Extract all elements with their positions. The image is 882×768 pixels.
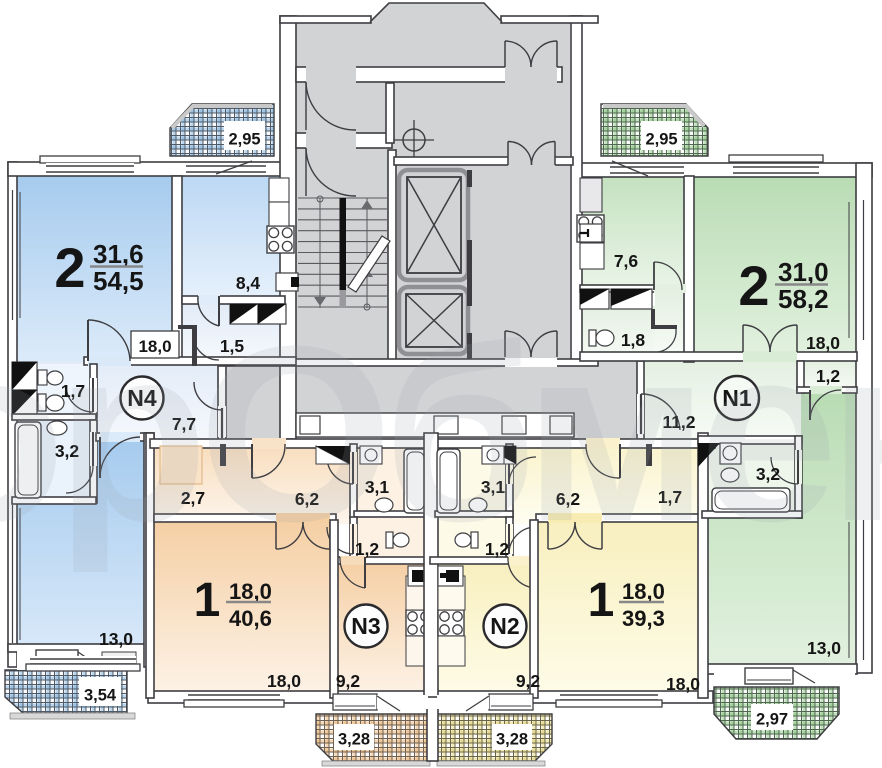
svg-text:орОбмен: орОбмен	[0, 294, 882, 573]
svg-text:3,28: 3,28	[338, 731, 370, 749]
svg-text:2: 2	[54, 236, 85, 299]
svg-text:7,6: 7,6	[614, 251, 639, 271]
svg-text:9,2: 9,2	[336, 671, 361, 691]
svg-text:2,95: 2,95	[228, 131, 260, 149]
svg-text:3,28: 3,28	[496, 731, 528, 749]
svg-text:31,6: 31,6	[93, 239, 144, 269]
svg-text:54,5: 54,5	[93, 266, 144, 296]
svg-text:18,0: 18,0	[622, 579, 665, 604]
svg-text:18,0: 18,0	[267, 671, 301, 691]
svg-text:2,95: 2,95	[645, 131, 677, 149]
svg-text:13,0: 13,0	[807, 638, 841, 658]
svg-text:13,0: 13,0	[99, 629, 133, 649]
svg-text:18,0: 18,0	[229, 579, 272, 604]
svg-text:31,0: 31,0	[778, 257, 829, 287]
svg-text:18,0: 18,0	[666, 674, 700, 694]
svg-text:N2: N2	[490, 613, 519, 639]
svg-text:1: 1	[588, 574, 615, 627]
svg-text:N3: N3	[351, 613, 380, 639]
svg-text:1: 1	[194, 574, 221, 627]
svg-text:40,6: 40,6	[229, 606, 272, 631]
svg-text:39,3: 39,3	[622, 606, 665, 631]
svg-text:2,97: 2,97	[756, 711, 788, 729]
svg-text:3,54: 3,54	[84, 687, 117, 705]
svg-text:8,4: 8,4	[236, 273, 261, 293]
svg-text:9,2: 9,2	[516, 671, 541, 691]
